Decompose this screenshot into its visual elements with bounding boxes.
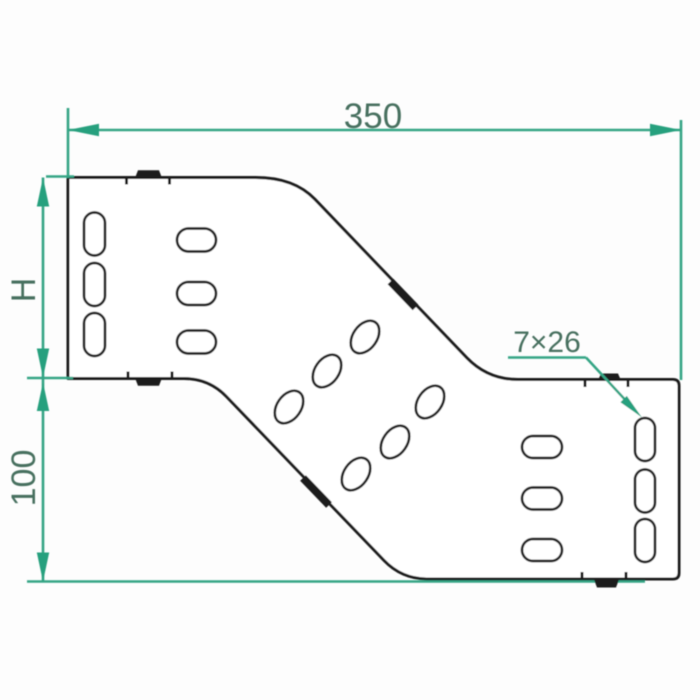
svg-text:350: 350 [344,97,402,136]
svg-text:H: H [5,278,43,303]
svg-text:7×26: 7×26 [513,326,581,359]
svg-text:100: 100 [5,450,43,507]
